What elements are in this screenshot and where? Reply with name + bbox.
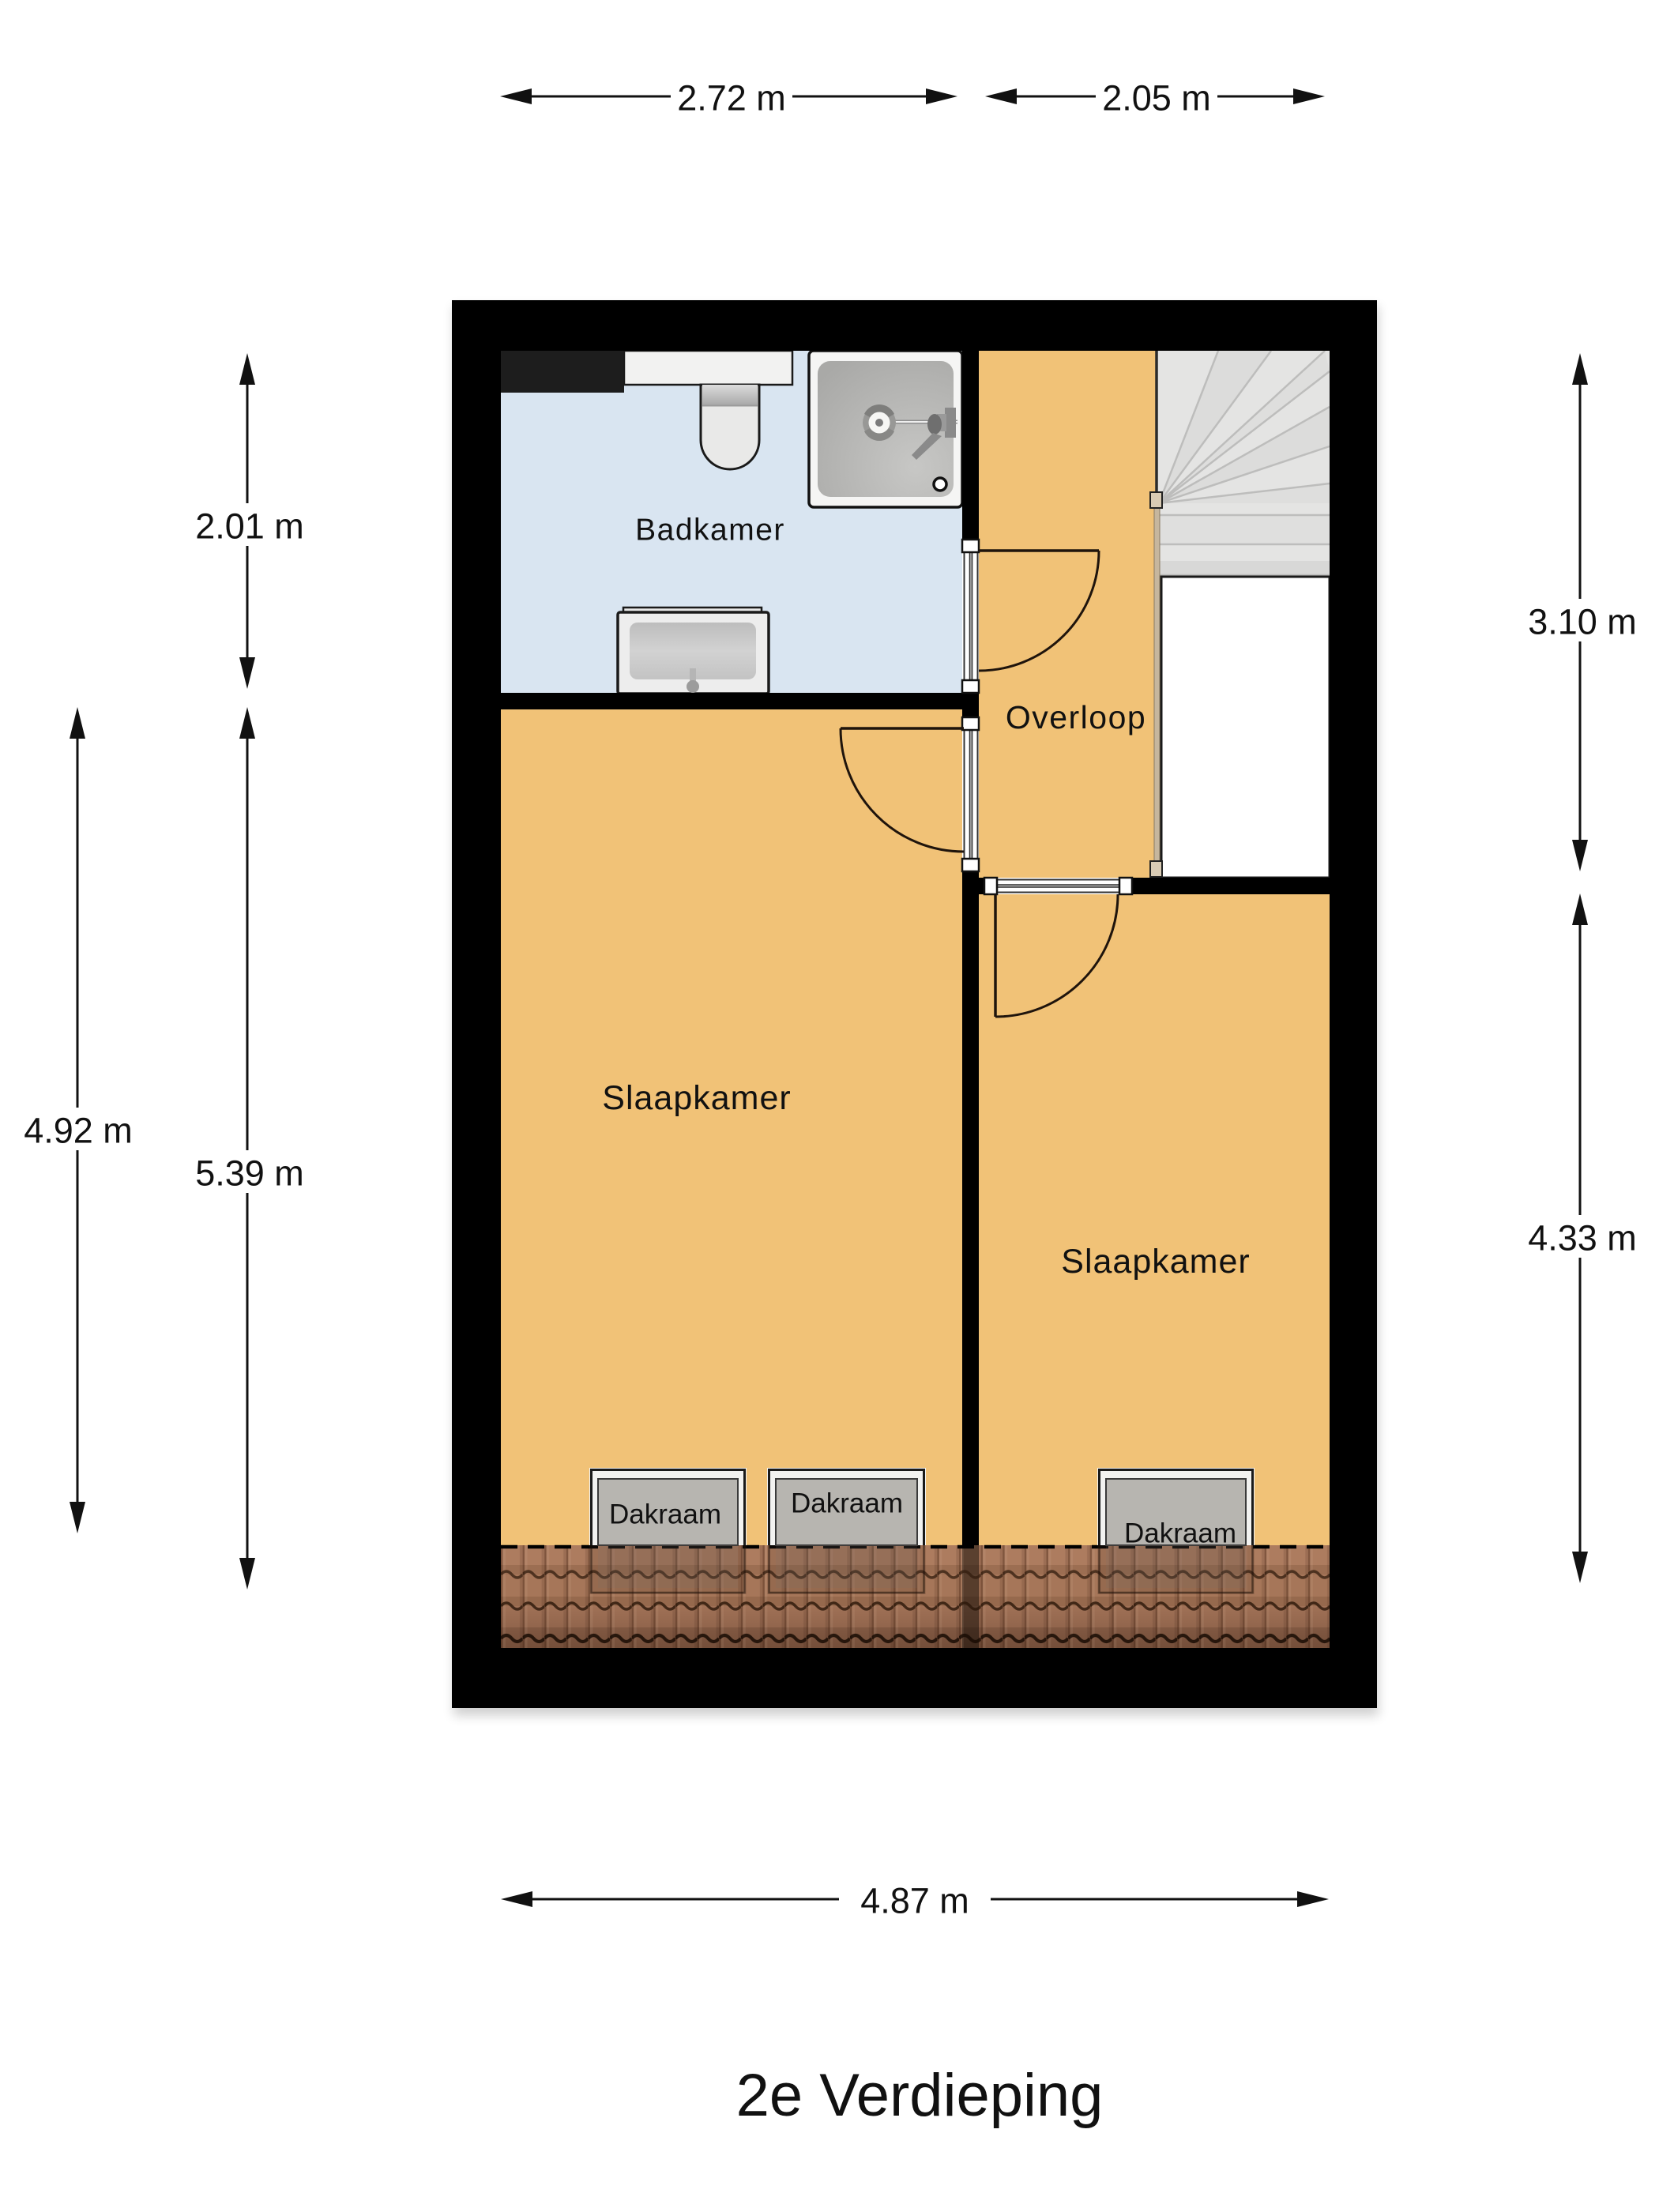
svg-text:Badkamer: Badkamer: [635, 513, 785, 547]
svg-text:Slaapkamer: Slaapkamer: [602, 1079, 791, 1117]
svg-text:4.33 m: 4.33 m: [1528, 1218, 1637, 1258]
svg-text:Overloop: Overloop: [1006, 699, 1146, 735]
svg-text:Slaapkamer: Slaapkamer: [1061, 1243, 1250, 1281]
svg-text:Dakraam: Dakraam: [609, 1499, 721, 1530]
svg-text:Dakraam: Dakraam: [1124, 1518, 1236, 1549]
svg-text:5.39 m: 5.39 m: [195, 1153, 304, 1194]
svg-text:2.05 m: 2.05 m: [1102, 78, 1211, 118]
svg-text:3.10 m: 3.10 m: [1528, 602, 1637, 642]
svg-text:4.87 m: 4.87 m: [860, 1881, 969, 1921]
svg-text:2.72 m: 2.72 m: [677, 78, 786, 118]
svg-text:2.01 m: 2.01 m: [195, 506, 304, 547]
svg-text:Dakraam: Dakraam: [791, 1488, 903, 1519]
svg-text:4.92 m: 4.92 m: [24, 1111, 133, 1151]
svg-text:2e Verdieping: 2e Verdieping: [736, 2062, 1104, 2129]
